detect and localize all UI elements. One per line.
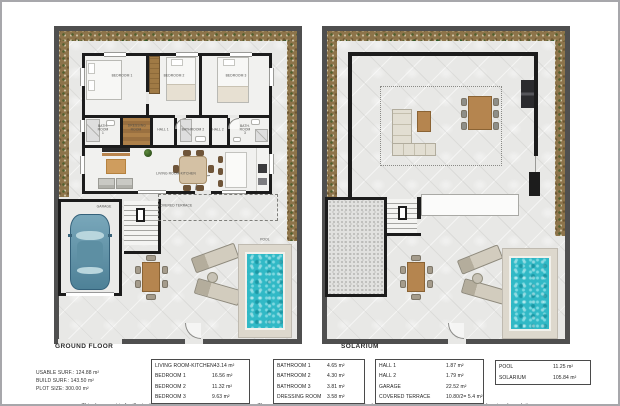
- row-label: BEDROOM 1: [155, 373, 212, 379]
- chair: [135, 280, 141, 288]
- stairs-wall-bottom: [124, 251, 158, 254]
- row-value: 4.65 m²: [327, 363, 361, 369]
- row-value: 1.79 m²: [446, 373, 480, 379]
- table-row: COVERED TERRACE10.80/2= 5.4 m²: [376, 394, 483, 400]
- row-label: LIVING ROOM-KITCHEN: [155, 363, 214, 369]
- chair: [135, 266, 141, 274]
- car: [70, 214, 110, 290]
- row-value: 43.14 m²: [214, 363, 248, 369]
- wall-chunk: [529, 172, 540, 196]
- room-label-bedroom2: BEDROOM 2: [164, 74, 185, 78]
- wall-dressing: [150, 115, 153, 148]
- stool: [218, 180, 223, 187]
- row-label: DRESSING ROOM: [277, 394, 327, 400]
- parapet-right: [534, 52, 538, 156]
- tv-shelf: [102, 153, 130, 156]
- car-roof: [77, 241, 103, 265]
- chair: [461, 98, 467, 106]
- row-label: GARAGE: [379, 384, 446, 390]
- chair: [146, 255, 156, 261]
- door-gap-bedroom1: [146, 92, 149, 104]
- garden-strip-top: [327, 31, 565, 41]
- table-row: LIVING ROOM-KITCHEN43.14 m²: [152, 363, 249, 369]
- table-row: SOLARIUM105.84 m²: [496, 375, 590, 381]
- car-windshield: [76, 231, 104, 240]
- room-label-garage: GARAGE: [97, 205, 112, 209]
- table-row: BATHROOM 33.81 m²: [274, 384, 364, 390]
- ground-floor-title: GROUND FLOOR: [55, 343, 113, 350]
- blanket: [218, 86, 248, 102]
- chair: [162, 280, 168, 288]
- rug: [106, 159, 126, 174]
- row-value: 105.84 m²: [553, 375, 587, 381]
- table-bathrooms: BATHROOM 14.65 m² BATHROOM 24.30 m² BATH…: [273, 359, 365, 404]
- table-row: BEDROOM 39.63 m²: [152, 394, 249, 400]
- row-label: BEDROOM 2: [155, 384, 212, 390]
- window-left-living: [80, 156, 85, 174]
- table-row: POOL11.25 m²: [496, 364, 590, 370]
- pillow: [88, 63, 95, 74]
- wall-hall2: [227, 115, 230, 148]
- sofa: [98, 178, 115, 189]
- row-value: 3.81 m²: [327, 384, 361, 390]
- floor-plan-sheet: BEDROOM 1 BEDROOM 2 BEDROOM 3 BATH. ROOM…: [0, 0, 620, 406]
- chair: [411, 294, 421, 300]
- oven: [258, 164, 267, 173]
- window-left-bath1: [80, 120, 85, 132]
- table-row: GARAGE22.52 m²: [376, 384, 483, 390]
- room-label-bedroom1: BEDROOM 1: [112, 74, 133, 78]
- row-label: POOL: [499, 364, 553, 370]
- chair: [400, 280, 406, 288]
- room-label-living: LIVING ROOM-KITCHEN: [156, 172, 196, 176]
- garden-strip-left: [59, 41, 69, 197]
- room-label-bathroom2: BATHROOM 2: [182, 128, 205, 132]
- row-label: BATHROOM 3: [277, 384, 327, 390]
- chair: [427, 280, 433, 288]
- surface-stats: USABLE SURF.: 124.88 m² BUILD SURF.: 143…: [36, 369, 99, 393]
- window-bedroom1: [104, 52, 126, 57]
- table-row: BEDROOM 211.32 m²: [152, 384, 249, 390]
- outdoor-table: [142, 262, 160, 292]
- table-pool: POOL11.25 m² SOLARIUM105.84 m²: [495, 360, 591, 385]
- window-left-bedroom1: [80, 68, 85, 86]
- garden-strip-left: [327, 41, 337, 197]
- chair: [493, 122, 499, 130]
- plot-size: PLOT SIZE: 300.00 m²: [36, 385, 99, 393]
- parapet-left: [348, 52, 352, 197]
- row-value: 9.63 m²: [212, 394, 246, 400]
- chair: [196, 185, 204, 191]
- window-right-kitchen: [269, 154, 274, 174]
- sink-bath3: [233, 137, 241, 142]
- row-label: SOLARIUM: [499, 375, 553, 381]
- wardrobe: [149, 56, 160, 94]
- chair: [493, 98, 499, 106]
- row-label: HALL 2: [379, 373, 446, 379]
- room-label-bathroom1: BATH. ROOM 1: [97, 125, 109, 136]
- chair: [146, 294, 156, 300]
- stool: [218, 156, 223, 163]
- wall-bed2-bed3: [199, 53, 202, 118]
- chair: [400, 266, 406, 274]
- row-label: HALL 1: [379, 363, 446, 369]
- pool: [245, 252, 285, 330]
- car-rear-window: [77, 267, 103, 274]
- gate-gap: [448, 339, 466, 344]
- table-row: HALL 11.87 m²: [376, 363, 483, 369]
- room-label-covered-terrace: COVERED TERRACE: [158, 204, 193, 208]
- glass-strip: [421, 194, 519, 216]
- pool: [509, 256, 551, 331]
- row-value: 1.87 m²: [446, 363, 480, 369]
- room-label-hall1: HALL 1: [157, 128, 169, 132]
- sink-bath2: [195, 136, 206, 142]
- solarium-plan: [322, 26, 570, 344]
- row-value: 10.80/2= 5.4 m²: [446, 394, 480, 400]
- chair: [493, 110, 499, 118]
- pillow: [223, 59, 235, 66]
- table-row: BEDROOM 116.56 m²: [152, 373, 249, 379]
- row-value: 11.32 m²: [212, 384, 246, 390]
- coffee-table: [417, 111, 431, 132]
- chair: [427, 266, 433, 274]
- stairs-rail: [398, 206, 407, 220]
- outdoor-table: [407, 262, 425, 292]
- room-label-pool: POOL: [260, 238, 270, 242]
- tv-unit: [102, 148, 130, 152]
- chair: [208, 165, 214, 173]
- pillow: [88, 80, 95, 91]
- ground-floor-plan: BEDROOM 1 BEDROOM 2 BEDROOM 3 BATH. ROOM…: [54, 26, 302, 344]
- l-sofa-vertical: [392, 109, 412, 147]
- chair: [461, 122, 467, 130]
- plant-icon: [144, 149, 152, 157]
- row-label: COVERED TERRACE: [379, 394, 446, 400]
- row-value: 4.30 m²: [327, 373, 361, 379]
- table-rooms: LIVING ROOM-KITCHEN43.14 m² BEDROOM 116.…: [151, 359, 250, 404]
- l-sofa-horizontal: [392, 143, 436, 156]
- side-table: [472, 273, 483, 284]
- table-row: BATHROOM 14.65 m²: [274, 363, 364, 369]
- usable-surface: USABLE SURF.: 124.88 m²: [36, 369, 99, 377]
- side-table: [207, 272, 218, 283]
- garden-strip-top: [59, 31, 297, 41]
- pillow: [171, 59, 183, 66]
- chair: [461, 110, 467, 118]
- window-right-bedroom3: [269, 68, 274, 86]
- car-mirror: [108, 234, 112, 237]
- row-value: 3.58 m²: [327, 394, 361, 400]
- parapet-top: [348, 52, 538, 56]
- room-label-hall2: HALL 2: [212, 128, 224, 132]
- row-label: BEDROOM 3: [155, 394, 212, 400]
- table-row: DRESSING ROOM3.58 m²: [274, 394, 364, 400]
- bbq-unit: [521, 80, 534, 108]
- stool: [218, 168, 223, 175]
- room-label-bathroom3: BATH. ROOM 3: [239, 125, 251, 136]
- solarium-dining-table: [468, 96, 492, 130]
- toilet-bath3: [251, 119, 260, 125]
- build-surface: BUILD SURF.: 143.50 m²: [36, 377, 99, 385]
- blanket: [167, 84, 195, 100]
- dining-table: [179, 156, 207, 184]
- wall-hall1: [174, 115, 177, 148]
- garden-strip-right: [555, 41, 565, 236]
- table-row: BATHROOM 24.30 m²: [274, 373, 364, 379]
- row-value: 22.52 m²: [446, 384, 480, 390]
- fridge: [258, 178, 267, 185]
- garage-door: [66, 292, 114, 296]
- shower-bath3: [255, 129, 268, 142]
- chair: [162, 266, 168, 274]
- row-label: BATHROOM 1: [277, 363, 327, 369]
- row-label: BATHROOM 2: [277, 373, 327, 379]
- room-label-dressing: DRESSING ROOM: [128, 124, 145, 131]
- room-label-bedroom3: BEDROOM 3: [226, 74, 247, 78]
- car-mirror: [68, 234, 72, 237]
- gravel-roof: [325, 197, 387, 297]
- kitchen-island: [225, 152, 247, 188]
- sofa: [116, 178, 133, 189]
- gate-gap: [185, 339, 203, 344]
- stairs-wall-bottom: [387, 233, 421, 236]
- solarium-title: SOLARIUM: [341, 343, 379, 350]
- chair: [183, 185, 191, 191]
- garden-strip-right: [287, 41, 297, 241]
- stairs-rail: [136, 208, 145, 222]
- chair: [411, 255, 421, 261]
- row-value: 11.25 m²: [553, 364, 587, 370]
- table-row: HALL 21.79 m²: [376, 373, 483, 379]
- row-value: 16.56 m²: [212, 373, 246, 379]
- table-halls: HALL 11.87 m² HALL 21.79 m² GARAGE22.52 …: [375, 359, 484, 404]
